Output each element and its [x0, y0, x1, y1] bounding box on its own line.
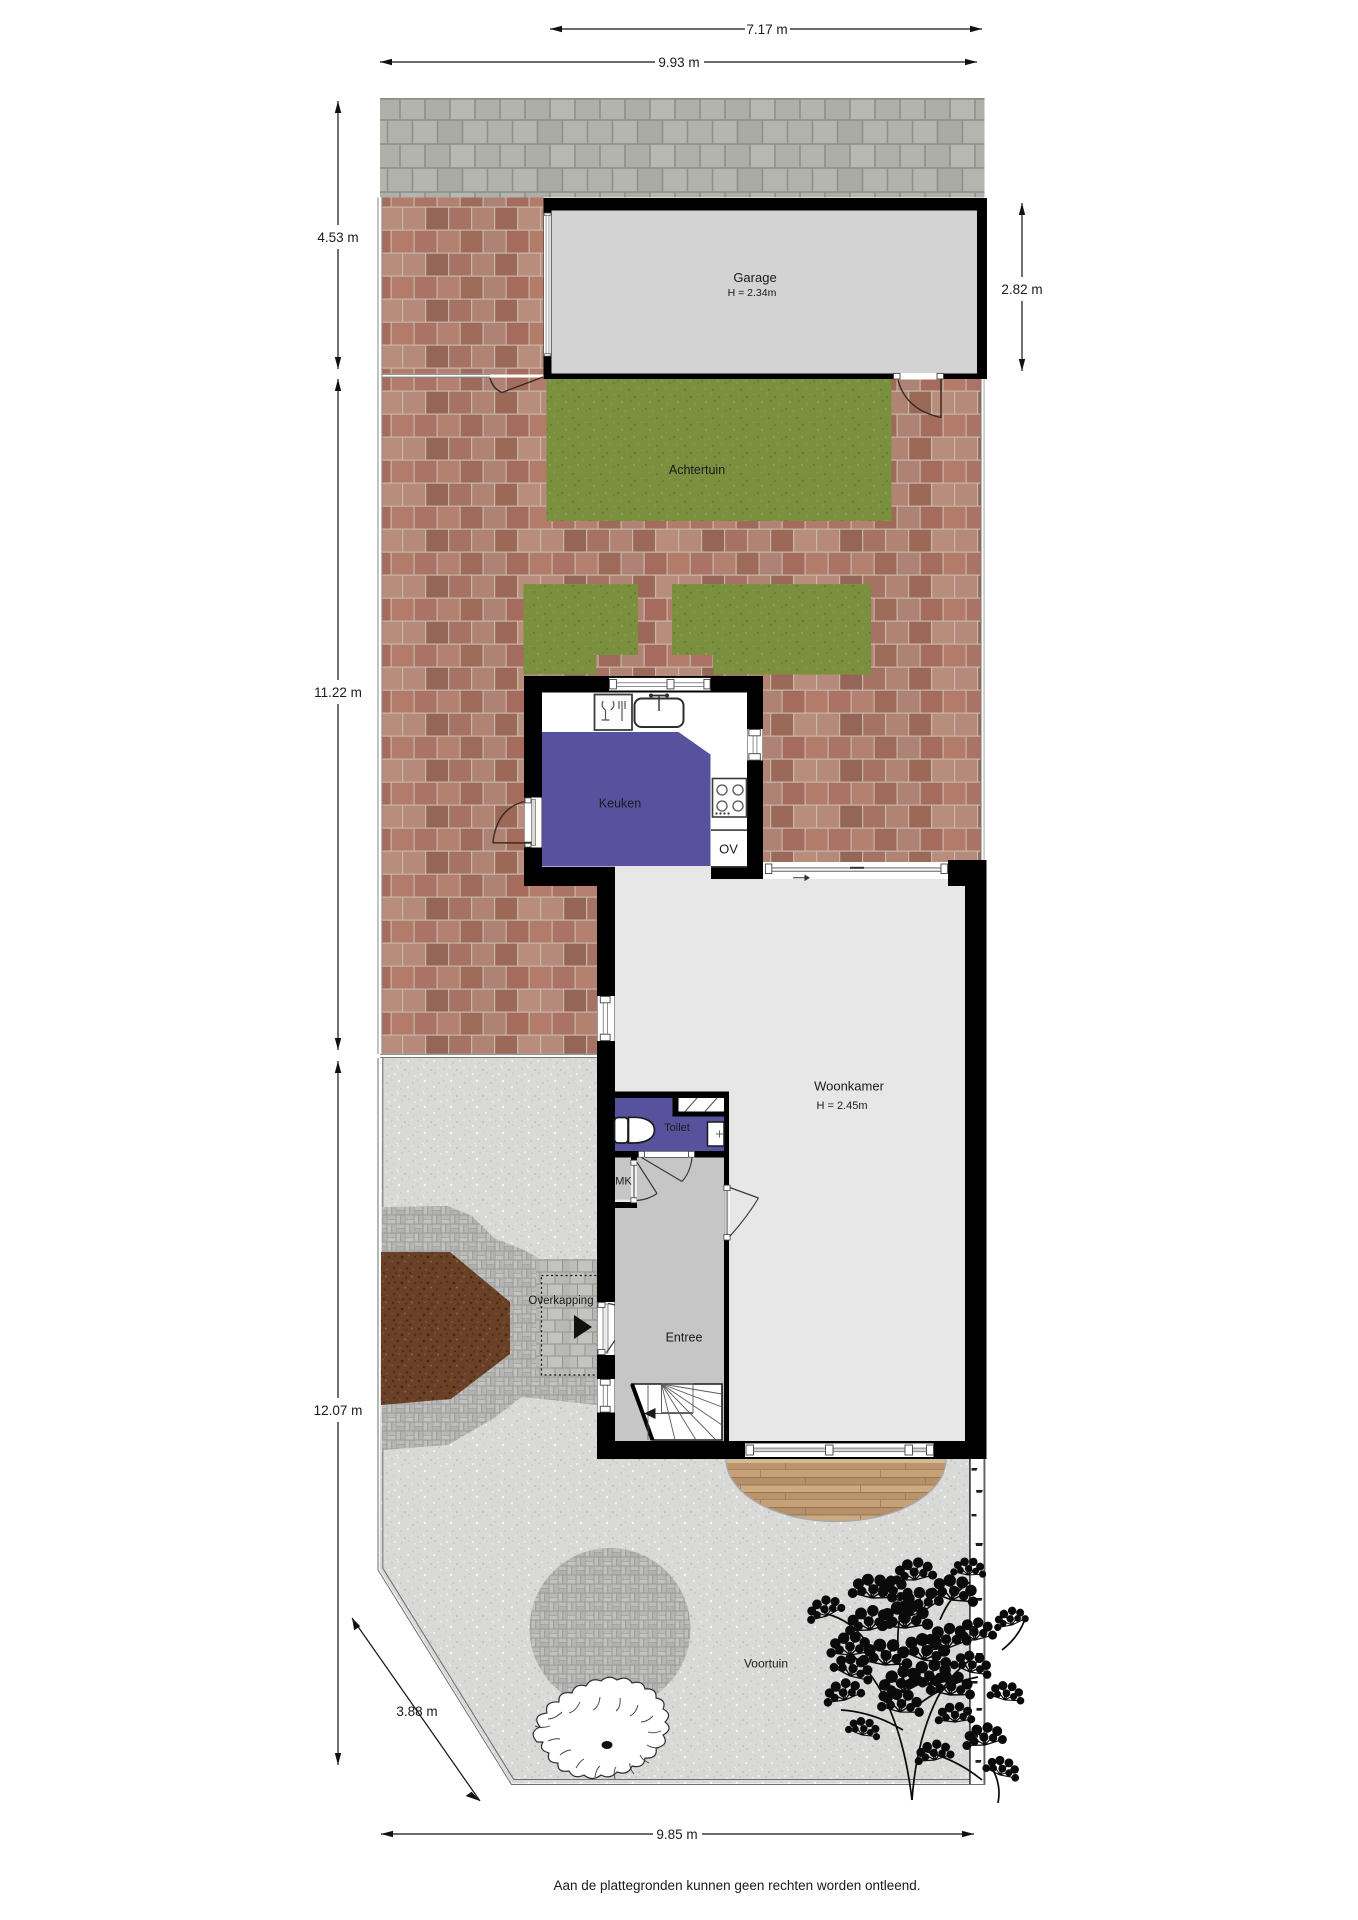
svg-text:Entree: Entree: [666, 1331, 703, 1345]
svg-text:Voortuin: Voortuin: [744, 1657, 788, 1671]
svg-text:Aan de plattegronden kunnen ge: Aan de plattegronden kunnen geen rechten…: [553, 1878, 920, 1893]
svg-text:9.85 m: 9.85 m: [656, 1827, 697, 1842]
svg-text:H = 2.34m: H = 2.34m: [728, 287, 777, 299]
svg-text:11.22 m: 11.22 m: [314, 685, 362, 700]
svg-text:9.93 m: 9.93 m: [658, 55, 699, 70]
svg-text:Keuken: Keuken: [599, 797, 641, 811]
svg-text:Garage: Garage: [733, 270, 776, 285]
svg-text:H = 2.45m: H = 2.45m: [816, 1100, 867, 1112]
svg-text:12.07 m: 12.07 m: [314, 1403, 363, 1418]
svg-text:Achtertuin: Achtertuin: [669, 463, 725, 477]
svg-text:4.53 m: 4.53 m: [317, 230, 358, 245]
svg-text:Overkapping: Overkapping: [528, 1295, 593, 1307]
svg-text:MK: MK: [615, 1176, 632, 1188]
svg-text:7.17 m: 7.17 m: [746, 22, 787, 37]
svg-text:Woonkamer: Woonkamer: [814, 1079, 885, 1094]
svg-text:OV: OV: [719, 842, 738, 857]
svg-text:3.88 m: 3.88 m: [396, 1704, 437, 1719]
svg-text:2.82 m: 2.82 m: [1001, 282, 1042, 297]
svg-text:Toilet: Toilet: [664, 1122, 690, 1134]
